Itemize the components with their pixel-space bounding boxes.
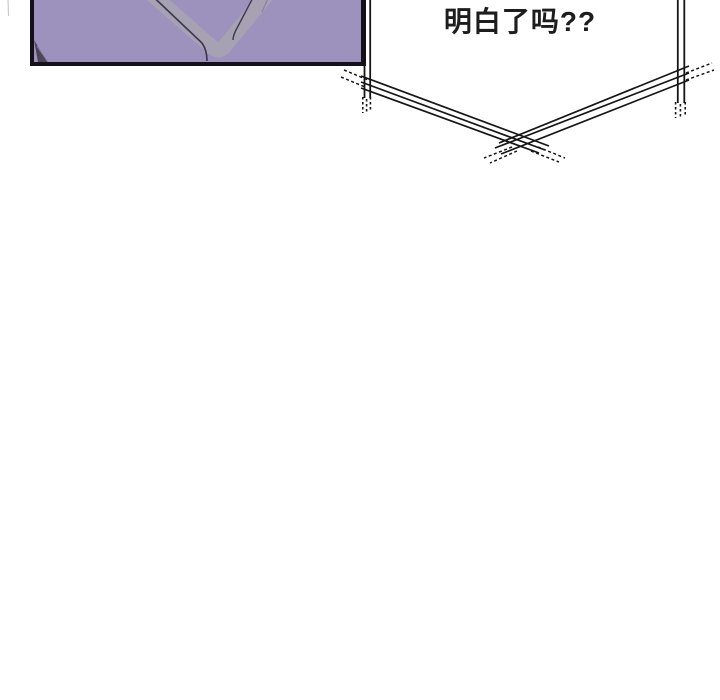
speech-bubble-text: 明白了吗?? [412, 7, 628, 36]
collar-band [140, 0, 276, 50]
vneck-collar-art [34, 0, 361, 62]
comic-panel [30, 0, 366, 66]
bubble-left-diagonals [361, 76, 549, 153]
sketch-artifact [0, 0, 30, 40]
bubble-right-diagonals [495, 66, 689, 154]
comic-page: 明白了吗?? [0, 0, 720, 700]
